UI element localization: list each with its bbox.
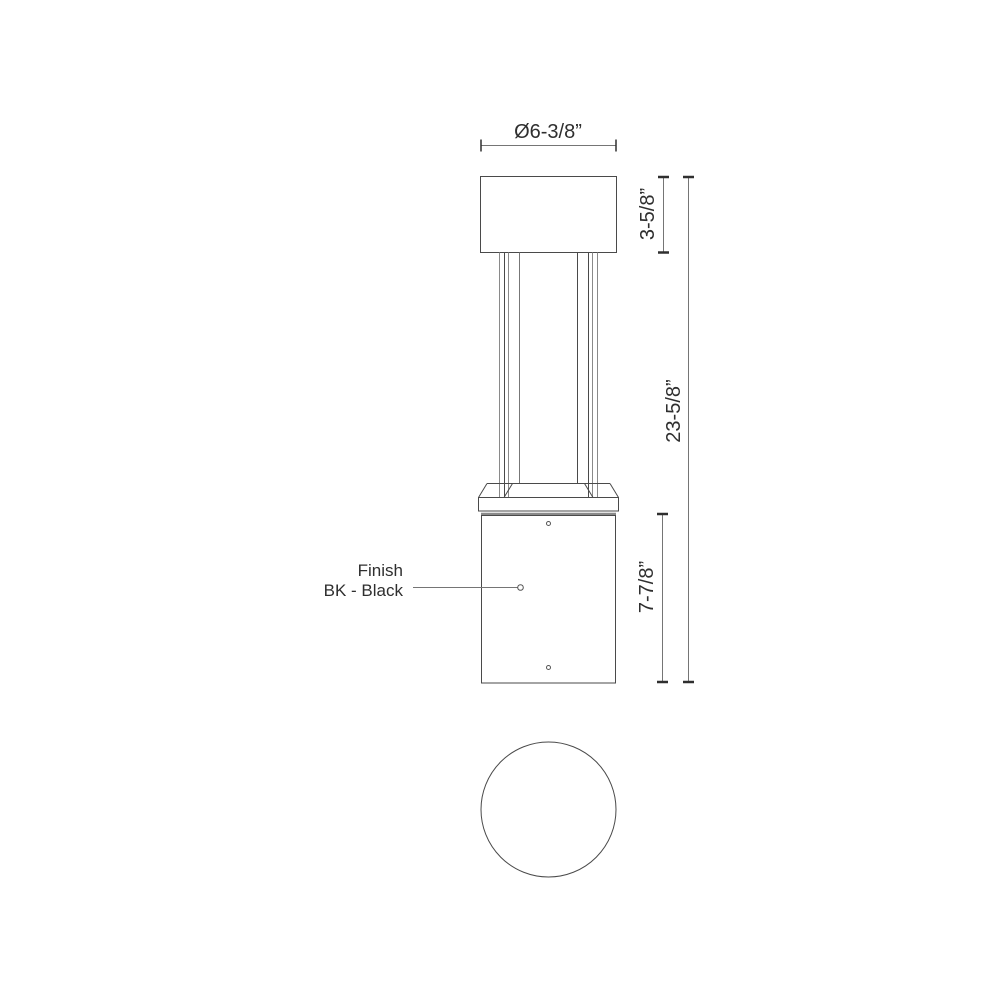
finish-label-value: BK - Black	[283, 581, 403, 601]
front-view	[479, 177, 619, 684]
base-plate-outline	[479, 498, 619, 512]
dim-text-overall-height: 23-5/8”	[663, 356, 685, 466]
dim-text-base-height: 7-7/8”	[636, 532, 658, 642]
collar-chamfer-right-outer	[610, 484, 619, 498]
base-body-outline	[482, 516, 616, 684]
lamp-head-outline	[481, 177, 617, 253]
finish-label-title: Finish	[283, 561, 403, 581]
finish-leader-target	[518, 585, 524, 591]
screw-bottom	[547, 666, 551, 670]
collar-chamfer-left-outer	[479, 484, 488, 498]
drawing-canvas: Ø6-3/8” 3-5/8” 23-5/8” 7-7/8” Finish BK …	[0, 0, 1000, 1000]
top-view	[481, 742, 616, 877]
technical-drawing	[0, 0, 1000, 1000]
dim-text-head-height: 3-5/8”	[637, 159, 659, 269]
top-view-circle	[481, 742, 616, 877]
dim-text-top-diameter: Ø6-3/8”	[468, 121, 628, 143]
screw-top	[547, 522, 551, 526]
finish-label: Finish BK - Black	[283, 561, 403, 601]
